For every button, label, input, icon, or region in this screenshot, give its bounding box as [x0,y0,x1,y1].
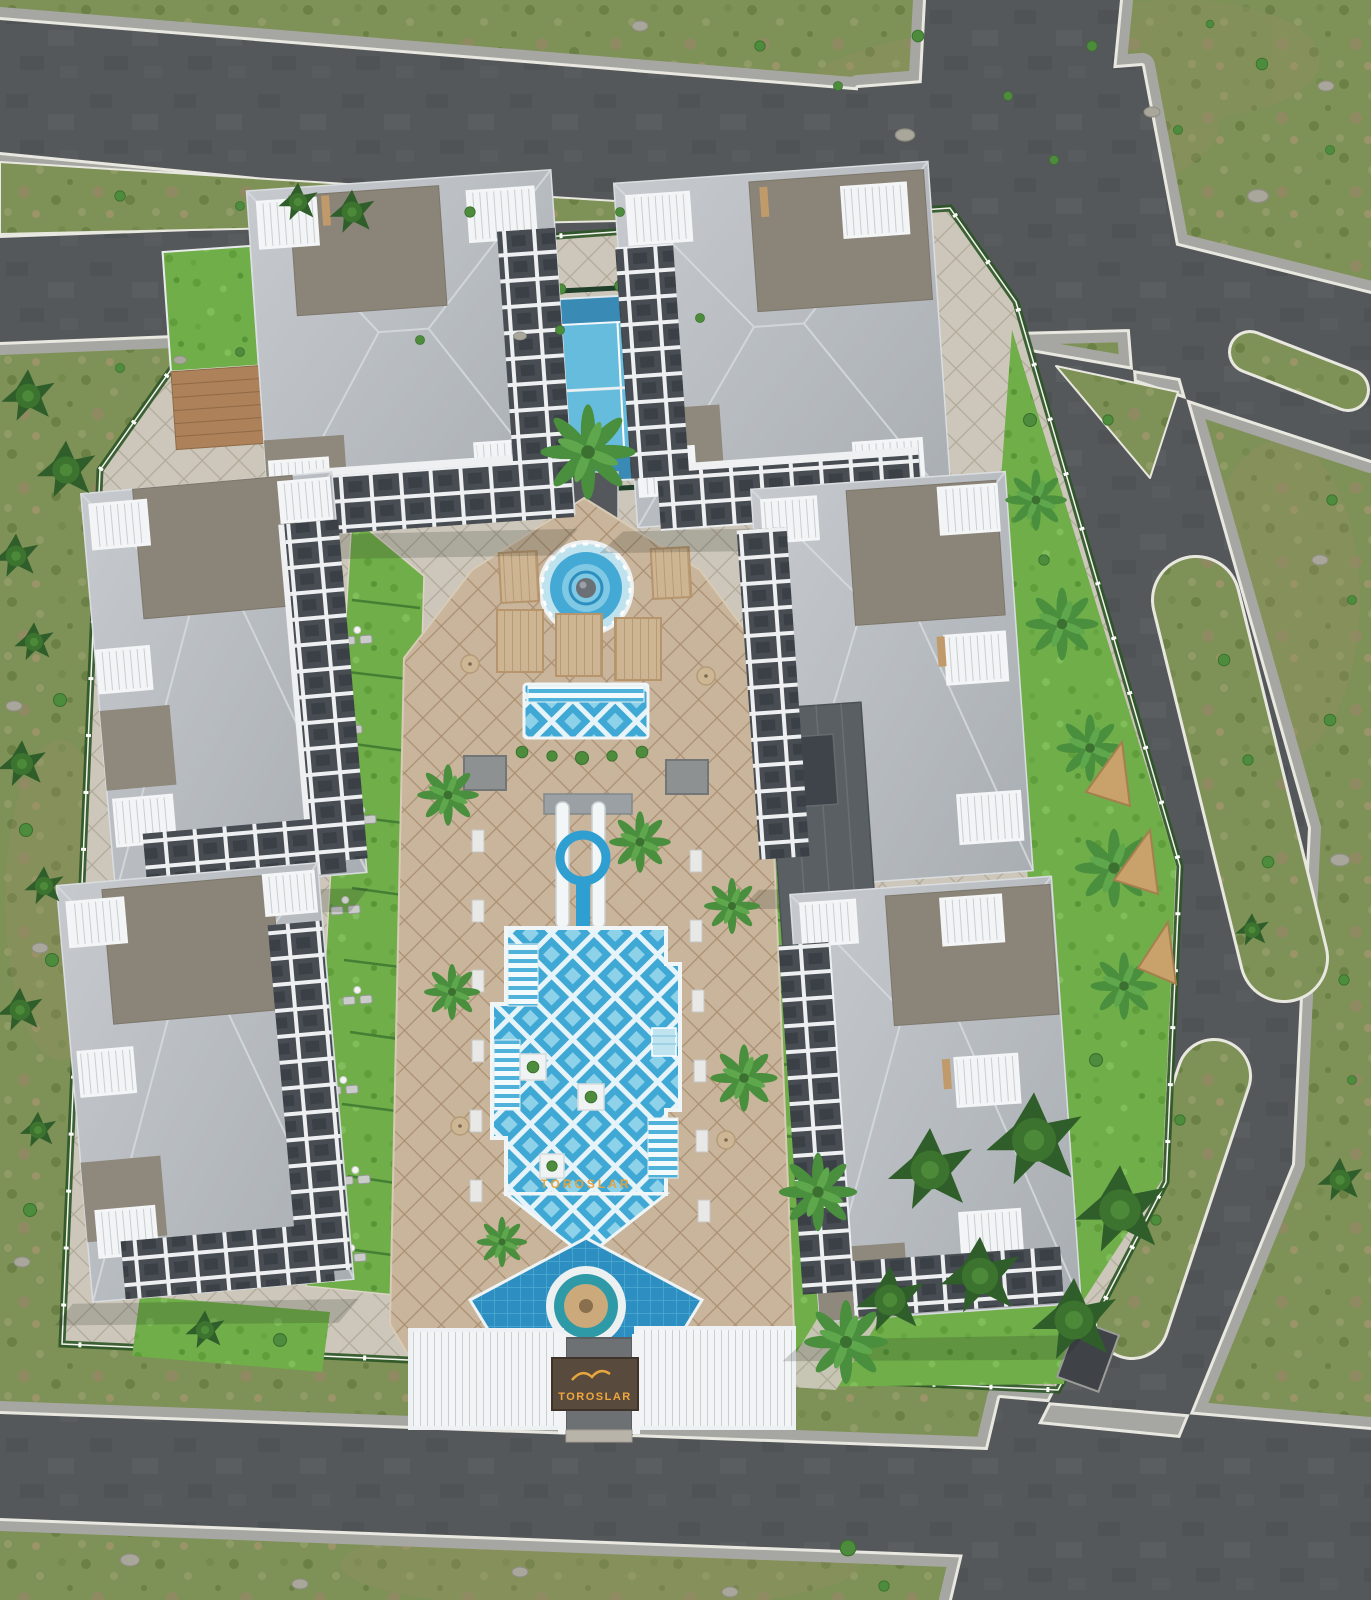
rooftop-pergola [801,900,858,946]
shade-pergola [464,756,506,790]
bush [1347,595,1356,604]
rooftop-pergola [90,500,150,549]
palm-tree [424,964,480,1020]
umbrella [717,1131,735,1149]
rooftop-pergola [627,192,692,244]
cabana [497,610,543,672]
bush [1175,1115,1185,1125]
bush [1347,1075,1356,1084]
bush [1339,975,1349,985]
bush [1256,58,1268,70]
cabana [499,551,540,603]
bush [1218,654,1230,666]
rooftop-pergola [78,1048,136,1097]
entrance-canopy-west [410,1330,562,1428]
bush [1324,714,1336,726]
palm-tree [710,1044,777,1111]
rooftop-pergola [97,647,152,693]
umbrella [461,655,479,673]
roof-dark-patch [133,475,304,618]
entrance-pergola: TOROSLAR [410,1328,794,1442]
palm-tree [704,878,760,934]
bush [615,207,624,216]
bush [1049,155,1058,164]
bush [555,325,564,334]
fountain-sphere-highlight [580,582,587,589]
bush [1151,1215,1161,1225]
bush [695,313,704,322]
rooftop-pergola [945,632,1008,684]
bush [1087,41,1097,51]
rooftop-pergola [958,791,1023,843]
pool-steps [652,1028,676,1056]
palm-tree [540,404,635,499]
island-fountain [579,1299,593,1313]
bush [1173,125,1182,134]
relaxation-pool [524,684,648,738]
entrance-canopy-east [636,1328,794,1428]
in-pool-loungers [508,944,538,1006]
fountain-sphere [576,578,596,598]
bush [755,41,765,51]
bush [1262,856,1274,868]
bush [1003,91,1012,100]
bush [1206,20,1214,28]
umbrella [697,667,715,685]
main-pool: TOROSLAR [492,928,680,1246]
rooftop-pergola [279,478,332,522]
cabana [615,618,661,680]
entrance-sign-text: TOROSLAR [558,1391,632,1403]
palm-tree [477,1217,527,1267]
in-pool-loungers [648,1118,678,1178]
palm-tree [1026,588,1099,661]
bush [1243,755,1253,765]
cabana-row [497,610,661,680]
palm-tree [417,764,479,826]
aerial-render: TOROSLAR TOROSLAR [0,0,1371,1600]
in-pool-loungers [528,686,644,702]
bush [1327,495,1337,505]
bush [415,335,424,344]
bush [115,191,125,201]
bush [833,81,842,90]
rooftop-pergola [263,871,316,915]
in-pool-loungers [494,1040,520,1110]
cabana [556,614,602,676]
bush [1024,414,1037,427]
bush [235,347,244,356]
bush [115,363,124,372]
bush [1325,145,1334,154]
bush [235,201,244,210]
bush [912,30,924,42]
slide-tube [576,878,590,932]
bush [1103,415,1113,425]
bush [1039,555,1049,565]
palm-tree [1005,469,1067,531]
entrance-step [566,1430,632,1442]
rooftop-pergola [938,484,999,534]
shade-pergola [666,760,708,794]
umbrella [451,1117,469,1135]
bush [1090,1054,1103,1067]
bush [465,207,475,217]
bush [54,694,67,707]
rooftop-pergola [955,1054,1020,1106]
cabana [651,547,692,599]
bush [24,1204,37,1217]
bush [879,1581,889,1591]
rooftop-pergola [67,898,127,947]
palm-tree [609,811,671,873]
bush [840,1540,856,1556]
roof-dark-patch [102,875,283,1024]
bush [20,824,33,837]
roof-dark-patch [100,705,177,791]
rooftop-pergola [842,183,909,237]
bush [46,954,59,967]
palm-tree [804,1300,888,1384]
palm-tree [779,1153,857,1231]
bush [274,1334,287,1347]
amenity-axis: TOROSLAR [390,498,794,1396]
rooftop-pergola [941,895,1004,945]
pool-floor-text: TOROSLAR [540,1177,631,1191]
